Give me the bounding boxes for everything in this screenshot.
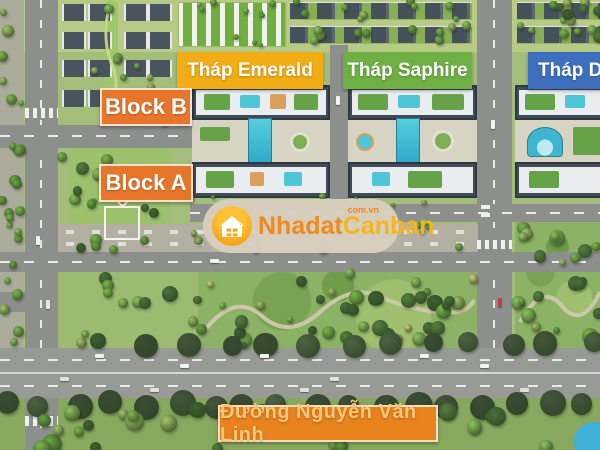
watermark-domain: com.vn <box>347 205 379 215</box>
watermark-brand-part1: Nhadat <box>258 212 343 240</box>
land-plot-outline <box>104 206 140 240</box>
block-b-label: Block B <box>100 88 192 126</box>
masterplan-map: Tháp Emerald Tháp Saphire Tháp Di Block … <box>0 0 600 450</box>
tower-label-emerald: Tháp Emerald <box>177 52 323 89</box>
watermark-brand: NhadatCanban <box>258 214 434 239</box>
watermark-brand-part2: Canban <box>343 212 435 240</box>
house-icon <box>212 206 252 246</box>
street-name-label: Đường Nguyễn Văn Linh <box>218 405 438 442</box>
tower-label-saphire: Tháp Saphire <box>343 52 472 89</box>
tower-label-diamond: Tháp Di <box>528 52 600 89</box>
watermark-badge: NhadatCanban com.vn <box>203 199 399 253</box>
block-a-label: Block A <box>99 164 193 202</box>
